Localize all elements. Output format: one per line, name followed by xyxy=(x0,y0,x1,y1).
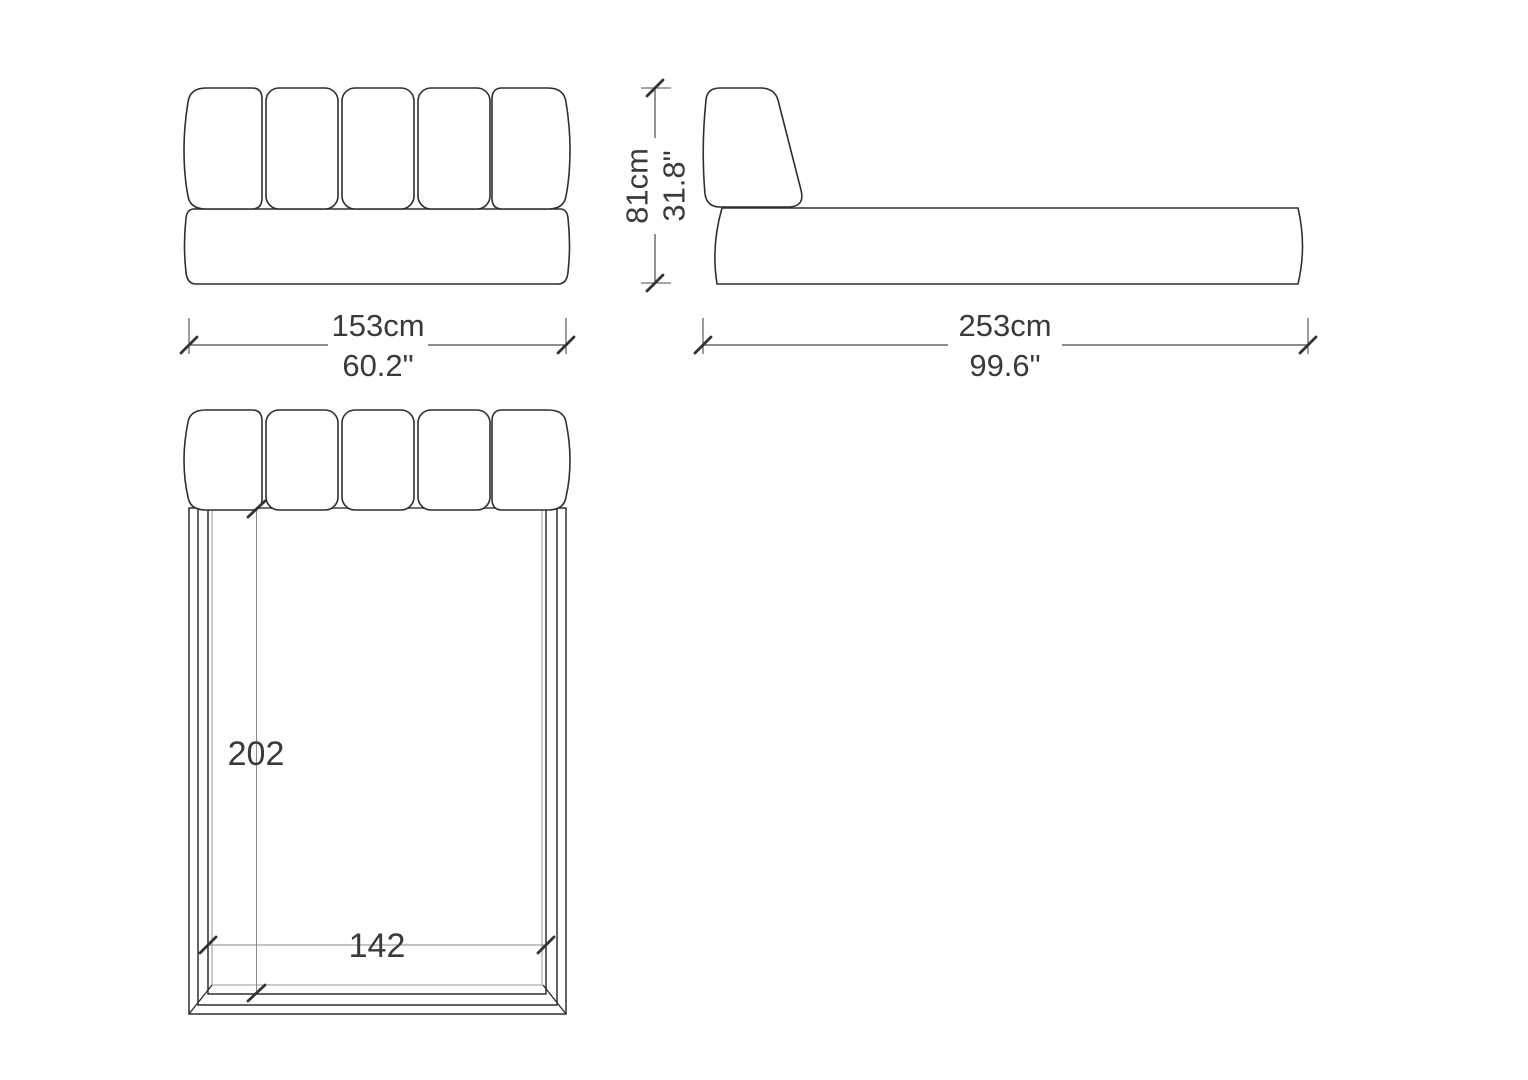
side-view xyxy=(703,88,1302,284)
length-in-label: 99.6" xyxy=(969,348,1040,383)
length-dimension: 253cm 99.6" xyxy=(695,308,1316,383)
side-base-outline xyxy=(715,208,1303,284)
plan-cushion-5 xyxy=(492,410,570,510)
plan-cushion-4 xyxy=(418,410,490,510)
mattress-width-dimension: 142 xyxy=(200,927,554,965)
mattress-length-label: 202 xyxy=(228,735,285,773)
height-dimension: 81cm 31.8" xyxy=(620,80,692,291)
front-width-cm-label: 153cm xyxy=(331,308,424,343)
bed-dimension-drawing: 153cm 60.2" 81cm 31.8" 253cm 99.6" xyxy=(0,0,1528,1080)
front-width-dimension: 153cm 60.2" xyxy=(181,308,574,383)
mattress-width-label: 142 xyxy=(349,927,406,965)
length-cm-label: 253cm xyxy=(958,308,1051,343)
front-cushion-5 xyxy=(492,88,570,209)
top-view xyxy=(184,410,570,1014)
mattress-length-dimension: 202 xyxy=(228,501,285,1001)
side-headboard-outline xyxy=(703,88,802,207)
front-view xyxy=(184,88,570,284)
miter-corner-left xyxy=(189,985,212,1014)
plan-cushion-3 xyxy=(342,410,414,510)
front-width-in-label: 60.2" xyxy=(342,348,413,383)
technical-drawing-page: 153cm 60.2" 81cm 31.8" 253cm 99.6" xyxy=(0,0,1528,1080)
plan-cushion-1 xyxy=(184,410,262,510)
front-cushion-2 xyxy=(266,88,338,209)
front-cushion-4 xyxy=(418,88,490,209)
plan-cushion-2 xyxy=(266,410,338,510)
front-cushion-3 xyxy=(342,88,414,209)
front-cushion-1 xyxy=(184,88,262,209)
height-cm-label: 81cm xyxy=(620,148,655,224)
miter-corner-right xyxy=(543,985,566,1014)
height-in-label: 31.8" xyxy=(657,150,692,221)
front-base-outline xyxy=(185,209,570,284)
